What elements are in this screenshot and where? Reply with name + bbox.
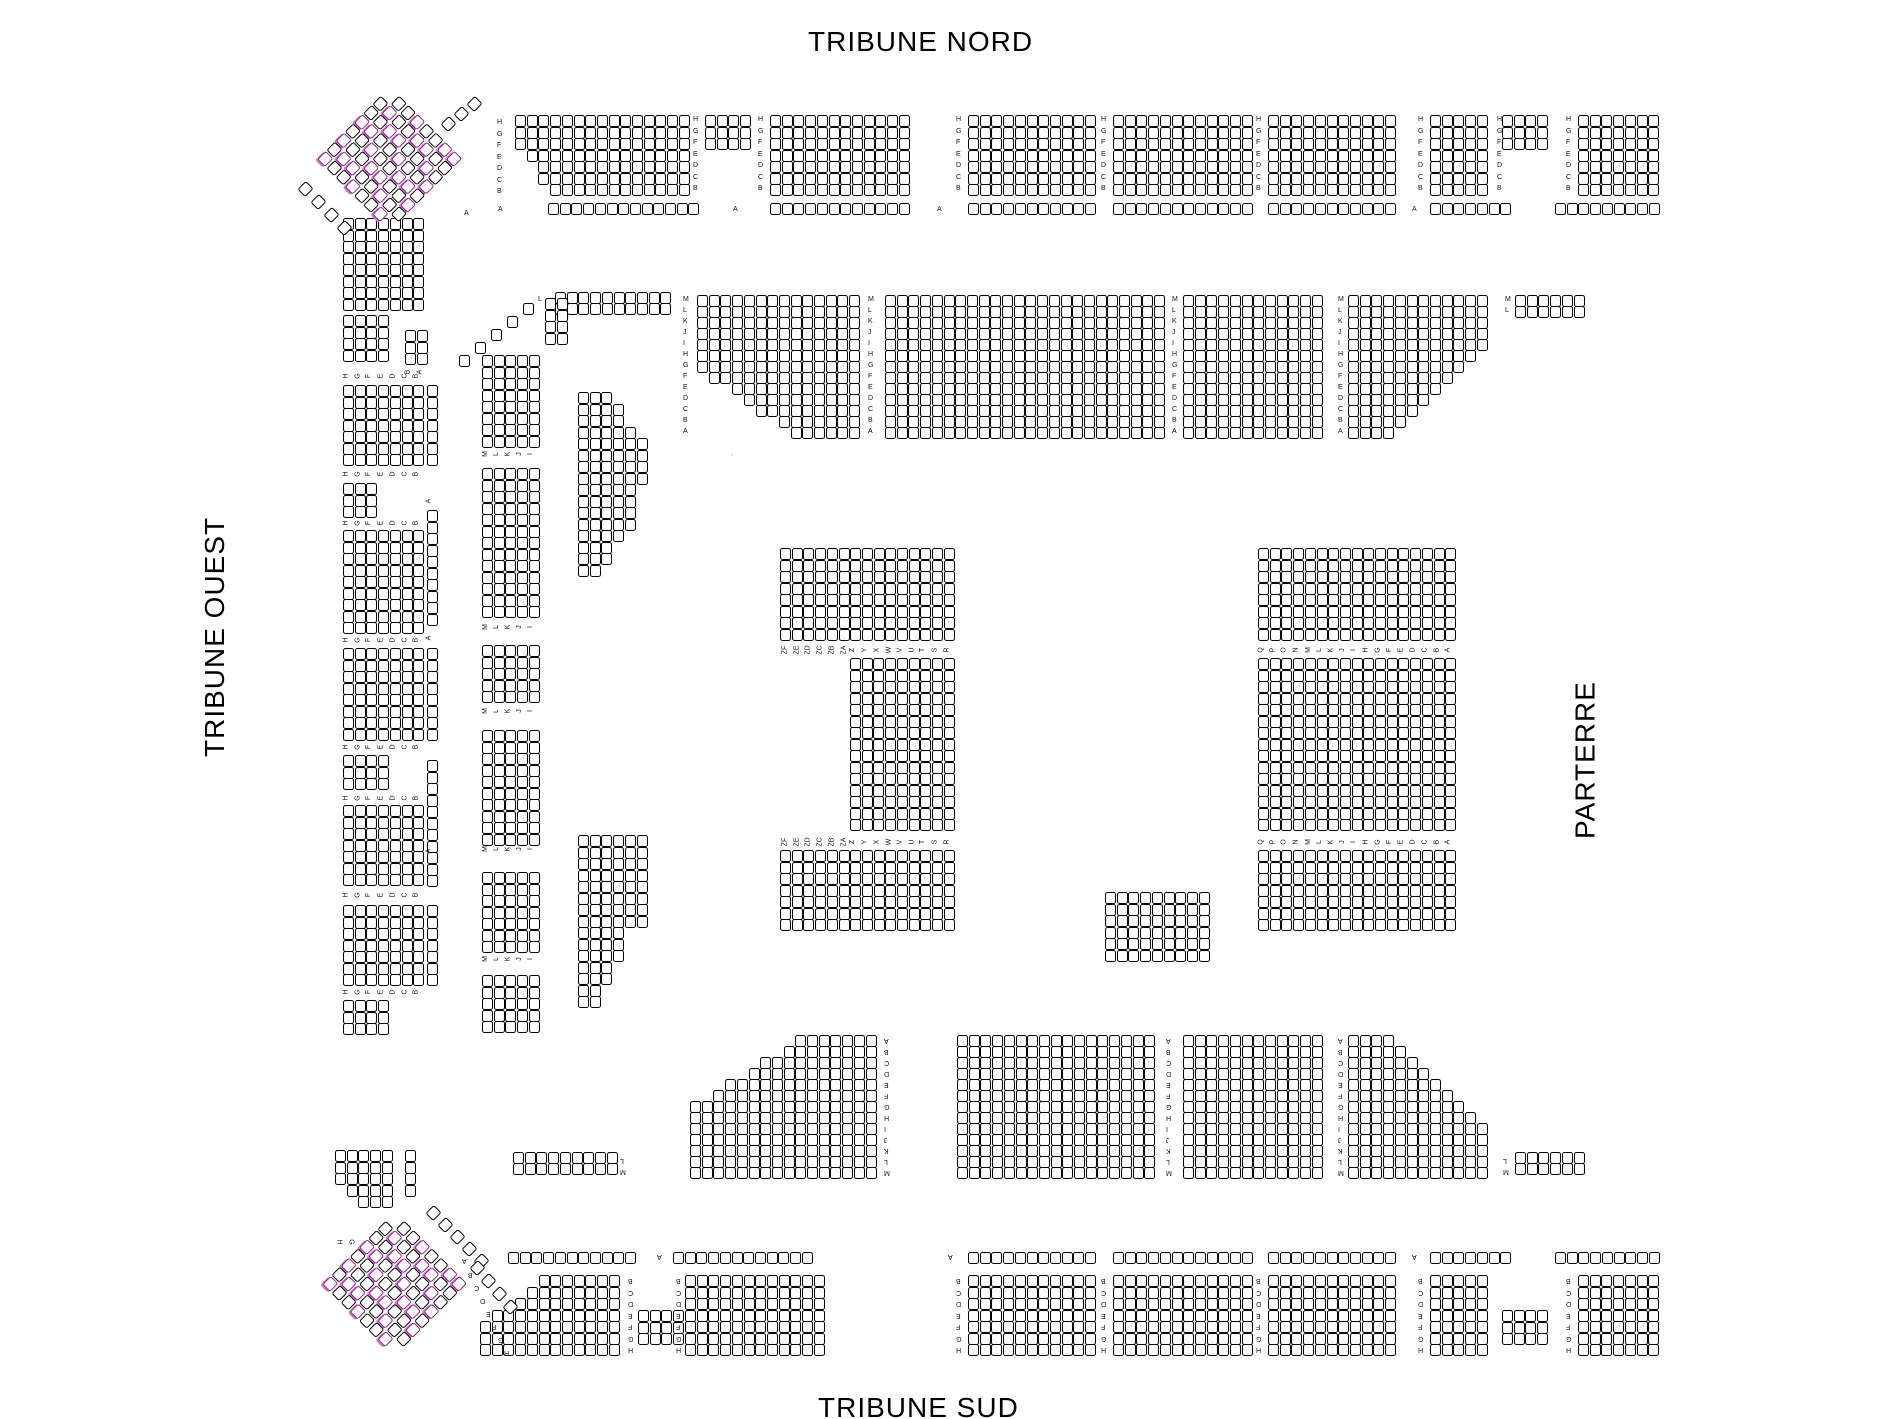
seat[interactable] (378, 1023, 389, 1035)
seat[interactable] (366, 385, 377, 397)
seat[interactable] (390, 974, 401, 986)
seat[interactable] (1183, 161, 1194, 173)
seat[interactable] (1270, 750, 1281, 762)
seat[interactable] (1327, 1298, 1338, 1310)
seat[interactable] (1039, 1167, 1050, 1179)
seat[interactable] (1398, 819, 1409, 831)
seat[interactable] (562, 161, 573, 173)
seat[interactable] (1502, 1310, 1513, 1322)
seat[interactable] (827, 617, 838, 629)
seat[interactable] (625, 484, 636, 496)
seat[interactable] (1410, 796, 1421, 808)
seat[interactable] (708, 1344, 719, 1356)
seat[interactable] (1142, 427, 1153, 439)
seat[interactable] (1327, 1321, 1338, 1333)
seat[interactable] (390, 648, 401, 660)
seat[interactable] (1637, 1275, 1648, 1287)
seat[interactable] (767, 1298, 778, 1310)
seat[interactable] (1268, 1298, 1279, 1310)
seat[interactable] (873, 704, 884, 716)
seat[interactable] (578, 996, 589, 1008)
seat[interactable] (1195, 427, 1206, 439)
seat[interactable] (1363, 919, 1374, 931)
seat[interactable] (529, 606, 540, 618)
seat[interactable] (991, 161, 1002, 173)
seat[interactable] (1398, 750, 1409, 762)
seat[interactable] (601, 438, 612, 450)
seat[interactable] (708, 1252, 719, 1264)
seat[interactable] (427, 829, 438, 841)
seat[interactable] (944, 773, 955, 785)
seat[interactable] (343, 694, 354, 706)
seat[interactable] (1148, 138, 1159, 150)
seat[interactable] (1465, 203, 1476, 215)
seat[interactable] (562, 1344, 573, 1356)
seat[interactable] (482, 918, 493, 930)
seat[interactable] (1293, 617, 1304, 629)
seat[interactable] (932, 750, 943, 762)
seat[interactable] (515, 1321, 526, 1333)
seat[interactable] (550, 138, 561, 150)
seat[interactable] (1410, 658, 1421, 670)
seat[interactable] (1398, 594, 1409, 606)
seat[interactable] (1281, 796, 1292, 808)
seat[interactable] (1340, 571, 1351, 583)
seat[interactable] (1050, 184, 1061, 196)
seat[interactable] (1418, 394, 1429, 406)
seat[interactable] (1434, 727, 1445, 739)
seat[interactable] (792, 873, 803, 885)
seat[interactable] (815, 873, 826, 885)
seat[interactable] (790, 1252, 801, 1264)
seat[interactable] (1637, 115, 1648, 127)
seat[interactable] (539, 1298, 550, 1310)
seat[interactable] (1502, 138, 1513, 150)
seat[interactable] (1258, 773, 1269, 785)
seat[interactable] (1050, 161, 1061, 173)
seat[interactable] (1514, 1333, 1525, 1345)
seat[interactable] (732, 1252, 743, 1264)
seat[interactable] (814, 1344, 825, 1356)
seat[interactable] (590, 461, 601, 473)
seat[interactable] (1258, 629, 1269, 641)
seat[interactable] (413, 264, 424, 276)
seat[interactable] (402, 717, 413, 729)
seat[interactable] (1375, 658, 1386, 670)
seat[interactable] (1027, 1344, 1038, 1356)
seat[interactable] (1422, 773, 1433, 785)
seat[interactable] (1315, 1275, 1326, 1287)
seat[interactable] (1362, 184, 1373, 196)
seat[interactable] (1125, 1275, 1136, 1287)
seat[interactable] (897, 594, 908, 606)
seat[interactable] (1387, 819, 1398, 831)
seat[interactable] (709, 372, 720, 384)
seat[interactable] (1270, 919, 1281, 931)
seat[interactable] (885, 629, 896, 641)
seat[interactable] (1363, 629, 1374, 641)
seat[interactable] (297, 181, 313, 197)
seat[interactable] (932, 727, 943, 739)
seat[interactable] (1422, 658, 1433, 670)
seat[interactable] (1152, 950, 1163, 962)
seat[interactable] (873, 796, 884, 808)
seat[interactable] (494, 491, 505, 503)
seat[interactable] (899, 138, 910, 150)
seat[interactable] (1175, 938, 1186, 950)
seat[interactable] (770, 115, 781, 127)
seat[interactable] (517, 975, 528, 987)
seat[interactable] (1601, 184, 1612, 196)
seat[interactable] (1385, 184, 1396, 196)
seat[interactable] (1230, 184, 1241, 196)
seat[interactable] (644, 161, 655, 173)
seat[interactable] (1613, 184, 1624, 196)
seat[interactable] (1562, 306, 1573, 318)
seat[interactable] (1148, 203, 1159, 215)
seat[interactable] (673, 1252, 684, 1264)
seat[interactable] (1268, 184, 1279, 196)
seat[interactable] (578, 553, 589, 565)
seat[interactable] (1144, 1167, 1155, 1179)
seat[interactable] (1625, 1321, 1636, 1333)
seat[interactable] (390, 828, 401, 840)
seat[interactable] (1073, 161, 1084, 173)
seat[interactable] (585, 138, 596, 150)
seat[interactable] (355, 778, 366, 790)
seat[interactable] (792, 850, 803, 862)
seat[interactable] (1062, 1344, 1073, 1356)
seat[interactable] (1195, 1167, 1206, 1179)
seat[interactable] (1002, 427, 1013, 439)
seat[interactable] (1363, 548, 1374, 560)
seat[interactable] (390, 851, 401, 863)
seat[interactable] (366, 299, 377, 311)
seat[interactable] (590, 881, 601, 893)
seat[interactable] (1230, 138, 1241, 150)
seat[interactable] (1281, 658, 1292, 670)
seat[interactable] (1445, 819, 1456, 831)
seat[interactable] (413, 599, 424, 611)
seat[interactable] (1270, 629, 1281, 641)
seat[interactable] (732, 1321, 743, 1333)
seat[interactable] (697, 1275, 708, 1287)
seat[interactable] (1371, 1167, 1382, 1179)
seat[interactable] (1280, 115, 1291, 127)
seat[interactable] (932, 773, 943, 785)
seat[interactable] (728, 115, 739, 127)
seat[interactable] (980, 203, 991, 215)
seat[interactable] (1125, 1344, 1136, 1356)
seat[interactable] (1131, 427, 1142, 439)
seat[interactable] (590, 835, 601, 847)
seat[interactable] (1398, 896, 1409, 908)
seat[interactable] (597, 138, 608, 150)
seat[interactable] (839, 919, 850, 931)
seat[interactable] (1160, 1344, 1171, 1356)
seat[interactable] (1407, 405, 1418, 417)
seat[interactable] (523, 303, 534, 315)
seat[interactable] (874, 571, 885, 583)
seat[interactable] (1387, 617, 1398, 629)
seat[interactable] (601, 904, 612, 916)
seat[interactable] (366, 241, 377, 253)
seat[interactable] (1550, 306, 1561, 318)
seat[interactable] (480, 1321, 491, 1333)
seat[interactable] (1328, 571, 1339, 583)
seat[interactable] (613, 1252, 624, 1264)
seat[interactable] (517, 691, 528, 703)
seat[interactable] (1183, 1321, 1194, 1333)
seat[interactable] (402, 828, 413, 840)
seat[interactable] (482, 468, 493, 480)
seat[interactable] (688, 203, 699, 215)
seat[interactable] (1465, 161, 1476, 173)
seat[interactable] (505, 691, 516, 703)
seat[interactable] (390, 454, 401, 466)
seat[interactable] (1270, 617, 1281, 629)
seat[interactable] (402, 599, 413, 611)
seat[interactable] (1328, 629, 1339, 641)
seat[interactable] (1281, 727, 1292, 739)
seat[interactable] (1434, 548, 1445, 560)
seat[interactable] (378, 576, 389, 588)
seat[interactable] (529, 355, 540, 367)
seat[interactable] (355, 729, 366, 741)
seat[interactable] (1338, 115, 1349, 127)
seat[interactable] (637, 835, 648, 847)
seat[interactable] (366, 315, 377, 327)
seat[interactable] (968, 115, 979, 127)
seat[interactable] (873, 773, 884, 785)
seat[interactable] (402, 299, 413, 311)
seat[interactable] (968, 138, 979, 150)
seat[interactable] (405, 1150, 416, 1162)
seat[interactable] (1601, 1344, 1612, 1356)
seat[interactable] (1422, 617, 1433, 629)
seat[interactable] (885, 850, 896, 862)
seat[interactable] (413, 648, 424, 660)
seat[interactable] (482, 895, 493, 907)
seat[interactable] (1613, 161, 1624, 173)
seat[interactable] (837, 427, 848, 439)
seat[interactable] (390, 530, 401, 542)
seat[interactable] (1293, 658, 1304, 670)
seat[interactable] (1590, 1298, 1601, 1310)
seat[interactable] (1373, 161, 1384, 173)
seat[interactable] (1453, 203, 1464, 215)
seat[interactable] (1293, 873, 1304, 885)
seat[interactable] (1086, 1167, 1097, 1179)
seat[interactable] (413, 408, 424, 420)
seat[interactable] (1430, 1167, 1441, 1179)
seat[interactable] (1050, 1321, 1061, 1333)
seat[interactable] (1113, 1252, 1124, 1264)
seat[interactable] (1230, 1275, 1241, 1287)
seat[interactable] (720, 1275, 731, 1287)
seat[interactable] (1614, 203, 1625, 215)
seat[interactable] (1375, 727, 1386, 739)
seat[interactable] (644, 115, 655, 127)
seat[interactable] (968, 161, 979, 173)
seat[interactable] (968, 203, 979, 215)
seat[interactable] (1258, 704, 1269, 716)
seat[interactable] (390, 553, 401, 565)
seat[interactable] (378, 778, 389, 790)
seat[interactable] (505, 514, 516, 526)
seat[interactable] (802, 1252, 813, 1264)
seat[interactable] (1242, 1298, 1253, 1310)
seat[interactable] (887, 115, 898, 127)
seat[interactable] (494, 799, 505, 811)
seat[interactable] (366, 694, 377, 706)
seat[interactable] (402, 905, 413, 917)
seat[interactable] (366, 717, 377, 729)
seat[interactable] (1648, 1321, 1659, 1333)
seat[interactable] (427, 760, 438, 772)
seat[interactable] (1125, 1321, 1136, 1333)
seat[interactable] (1373, 1275, 1384, 1287)
seat[interactable] (1430, 203, 1441, 215)
seat[interactable] (538, 161, 549, 173)
seat[interactable] (839, 629, 850, 641)
seat[interactable] (505, 872, 516, 884)
seat[interactable] (1434, 850, 1445, 862)
seat[interactable] (1410, 727, 1421, 739)
seat[interactable] (366, 454, 377, 466)
seat[interactable] (550, 1321, 561, 1333)
seat[interactable] (1422, 796, 1433, 808)
seat[interactable] (1340, 873, 1351, 885)
seat[interactable] (655, 115, 666, 127)
seat[interactable] (885, 796, 896, 808)
seat[interactable] (529, 424, 540, 436)
seat[interactable] (1218, 161, 1229, 173)
seat[interactable] (1398, 658, 1409, 670)
seat[interactable] (494, 468, 505, 480)
seat[interactable] (578, 904, 589, 916)
seat[interactable] (897, 896, 908, 908)
seat[interactable] (343, 755, 354, 767)
seat[interactable] (667, 115, 678, 127)
seat[interactable] (517, 895, 528, 907)
seat[interactable] (427, 852, 438, 864)
seat[interactable] (1350, 1321, 1361, 1333)
seat[interactable] (543, 1252, 554, 1264)
seat[interactable] (1270, 819, 1281, 831)
seat[interactable] (1015, 115, 1026, 127)
seat[interactable] (1242, 161, 1253, 173)
seat[interactable] (1015, 1321, 1026, 1333)
seat[interactable] (461, 1241, 477, 1257)
seat[interactable] (1268, 115, 1279, 127)
seat[interactable] (991, 184, 1002, 196)
seat[interactable] (1537, 115, 1548, 127)
seat[interactable] (1003, 161, 1014, 173)
seat[interactable] (1590, 115, 1601, 127)
seat[interactable] (850, 896, 861, 908)
seat[interactable] (427, 729, 438, 741)
seat[interactable] (885, 727, 896, 739)
seat[interactable] (637, 916, 648, 928)
seat[interactable] (1293, 681, 1304, 693)
seat[interactable] (1268, 1275, 1279, 1287)
seat[interactable] (850, 796, 861, 808)
seat[interactable] (1578, 1298, 1589, 1310)
seat[interactable] (1136, 1298, 1147, 1310)
seat[interactable] (1442, 184, 1453, 196)
seat[interactable] (1383, 1167, 1394, 1179)
seat[interactable] (1119, 427, 1130, 439)
seat[interactable] (920, 658, 931, 670)
seat[interactable] (802, 1344, 813, 1356)
seat[interactable] (1305, 658, 1316, 670)
seat[interactable] (885, 681, 896, 693)
seat[interactable] (1073, 1344, 1084, 1356)
seat[interactable] (792, 594, 803, 606)
seat[interactable] (968, 1275, 979, 1287)
seat[interactable] (1625, 203, 1636, 215)
seat[interactable] (1422, 548, 1433, 560)
seat[interactable] (378, 431, 389, 443)
seat[interactable] (932, 571, 943, 583)
seat[interactable] (427, 510, 438, 522)
seat[interactable] (1625, 1252, 1636, 1264)
seat[interactable] (1453, 1321, 1464, 1333)
seat[interactable] (1258, 750, 1269, 762)
seat[interactable] (1398, 850, 1409, 862)
seat[interactable] (1578, 1344, 1589, 1356)
seat[interactable] (1305, 727, 1316, 739)
seat[interactable] (355, 648, 366, 660)
seat[interactable] (1293, 704, 1304, 716)
seat[interactable] (355, 338, 366, 350)
seat[interactable] (1265, 1167, 1276, 1179)
seat[interactable] (817, 161, 828, 173)
seat[interactable] (1038, 115, 1049, 127)
seat[interactable] (850, 819, 861, 831)
seat[interactable] (920, 704, 931, 716)
seat[interactable] (427, 717, 438, 729)
seat[interactable] (1218, 427, 1229, 439)
seat[interactable] (1051, 1167, 1062, 1179)
seat[interactable] (897, 919, 908, 931)
seat[interactable] (1015, 1344, 1026, 1356)
seat[interactable] (378, 350, 389, 362)
seat[interactable] (909, 629, 920, 641)
seat[interactable] (1352, 727, 1363, 739)
seat[interactable] (601, 881, 612, 893)
seat[interactable] (1328, 773, 1339, 785)
seat[interactable] (1340, 681, 1351, 693)
seat[interactable] (378, 408, 389, 420)
seat[interactable] (355, 299, 366, 311)
seat[interactable] (427, 905, 438, 917)
seat[interactable] (1602, 1252, 1613, 1264)
seat[interactable] (494, 560, 505, 572)
seat[interactable] (1477, 115, 1488, 127)
seat[interactable] (968, 1298, 979, 1310)
seat[interactable] (1327, 203, 1338, 215)
seat[interactable] (1305, 571, 1316, 583)
seat[interactable] (1128, 915, 1139, 927)
seat[interactable] (355, 530, 366, 542)
seat[interactable] (366, 974, 377, 986)
seat[interactable] (1350, 1275, 1361, 1287)
seat[interactable] (1422, 727, 1433, 739)
seat[interactable] (1500, 1252, 1511, 1264)
seat[interactable] (697, 1298, 708, 1310)
